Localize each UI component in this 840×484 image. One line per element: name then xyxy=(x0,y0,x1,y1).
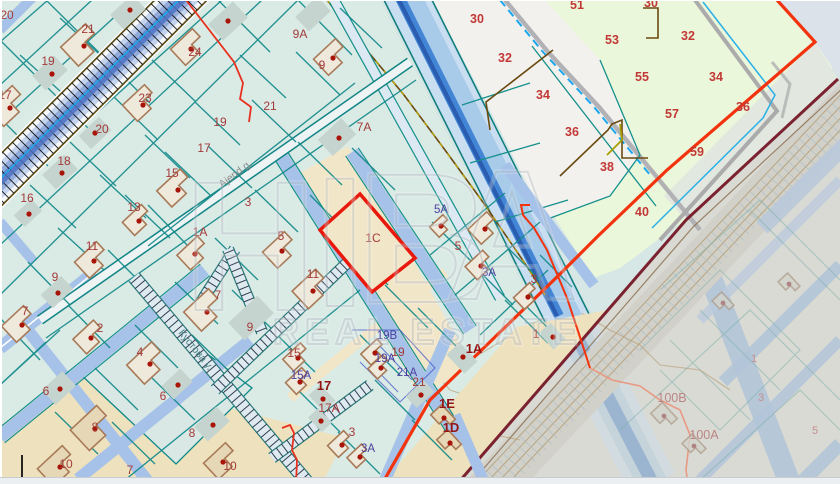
svg-text:17A: 17A xyxy=(318,401,339,415)
svg-text:10: 10 xyxy=(223,459,237,473)
svg-text:3: 3 xyxy=(349,425,356,439)
svg-text:8: 8 xyxy=(92,420,99,434)
svg-text:38: 38 xyxy=(600,160,614,174)
svg-text:16: 16 xyxy=(20,191,34,205)
svg-text:59: 59 xyxy=(690,145,704,159)
svg-text:6: 6 xyxy=(43,384,50,398)
svg-text:51: 51 xyxy=(570,0,584,12)
svg-text:21: 21 xyxy=(81,22,95,36)
svg-text:34: 34 xyxy=(709,70,723,84)
svg-text:100A: 100A xyxy=(689,428,719,442)
svg-text:20: 20 xyxy=(95,122,109,136)
svg-text:11: 11 xyxy=(86,239,99,253)
svg-text:10: 10 xyxy=(59,457,73,471)
svg-text:9: 9 xyxy=(52,270,59,284)
svg-text:18: 18 xyxy=(57,154,71,168)
svg-text:20: 20 xyxy=(0,8,14,22)
svg-text:7A: 7A xyxy=(357,120,372,134)
svg-text:3: 3 xyxy=(758,392,764,404)
svg-text:21: 21 xyxy=(412,375,426,389)
svg-text:15: 15 xyxy=(165,166,179,180)
svg-text:2: 2 xyxy=(97,321,104,335)
svg-text:А: А xyxy=(445,133,579,339)
svg-text:40: 40 xyxy=(635,205,649,219)
svg-text:7: 7 xyxy=(22,304,29,318)
svg-text:32: 32 xyxy=(498,51,512,65)
svg-text:1E: 1E xyxy=(439,396,455,411)
svg-text:32: 32 xyxy=(681,29,695,43)
svg-text:9A: 9A xyxy=(293,27,308,41)
svg-text:24: 24 xyxy=(188,45,202,59)
svg-text:5: 5 xyxy=(812,425,818,437)
svg-text:4: 4 xyxy=(137,345,144,359)
svg-text:19: 19 xyxy=(41,54,55,68)
svg-text:100B: 100B xyxy=(657,391,686,405)
svg-text:1: 1 xyxy=(751,353,757,365)
svg-text:1D: 1D xyxy=(443,420,460,435)
svg-text:17: 17 xyxy=(317,378,331,393)
svg-text:19A: 19A xyxy=(375,353,396,365)
svg-text:13: 13 xyxy=(127,200,141,214)
svg-text:9: 9 xyxy=(319,58,326,72)
svg-text:30: 30 xyxy=(470,12,484,26)
svg-text:53: 53 xyxy=(605,33,619,47)
svg-text:REAL ESTATE: REAL ESTATE xyxy=(273,311,583,352)
svg-text:55: 55 xyxy=(635,70,649,84)
svg-text:21: 21 xyxy=(263,99,277,113)
svg-text:15A: 15A xyxy=(291,370,312,382)
svg-text:8: 8 xyxy=(189,426,196,440)
svg-text:3A: 3A xyxy=(361,443,375,455)
svg-text:19: 19 xyxy=(213,115,227,129)
svg-text:36: 36 xyxy=(736,100,750,114)
svg-text:57: 57 xyxy=(665,107,679,121)
svg-text:23: 23 xyxy=(138,91,152,105)
svg-text:7: 7 xyxy=(127,463,134,477)
svg-text:30: 30 xyxy=(644,0,658,10)
svg-text:6: 6 xyxy=(160,389,167,403)
svg-text:34: 34 xyxy=(536,88,550,102)
